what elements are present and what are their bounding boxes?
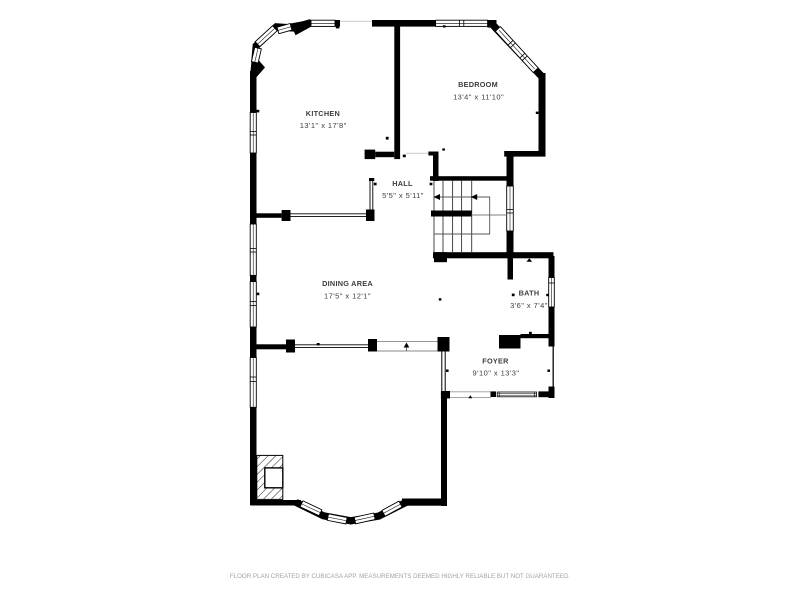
svg-text:BEDROOM: BEDROOM bbox=[458, 80, 498, 89]
svg-text:FOYER: FOYER bbox=[482, 356, 509, 365]
svg-text:13'1" x 17'8": 13'1" x 17'8" bbox=[300, 121, 347, 130]
svg-text:DINING AREA: DINING AREA bbox=[322, 279, 373, 288]
svg-text:3'6" x 7'4": 3'6" x 7'4" bbox=[510, 301, 548, 310]
svg-text:KITCHEN: KITCHEN bbox=[306, 109, 340, 118]
svg-text:17'5" x 12'1": 17'5" x 12'1" bbox=[324, 291, 371, 300]
svg-text:9'10" x 13'3": 9'10" x 13'3" bbox=[473, 369, 520, 378]
svg-text:BATH: BATH bbox=[519, 289, 540, 298]
svg-text:HALL: HALL bbox=[392, 179, 413, 188]
svg-text:FLOOR PLAN CREATED BY CUBICASA: FLOOR PLAN CREATED BY CUBICASA APP. MEAS… bbox=[230, 573, 571, 580]
svg-text:5'5" x 5'11": 5'5" x 5'11" bbox=[382, 191, 424, 200]
svg-text:13'4" x 11'10": 13'4" x 11'10" bbox=[453, 93, 504, 102]
